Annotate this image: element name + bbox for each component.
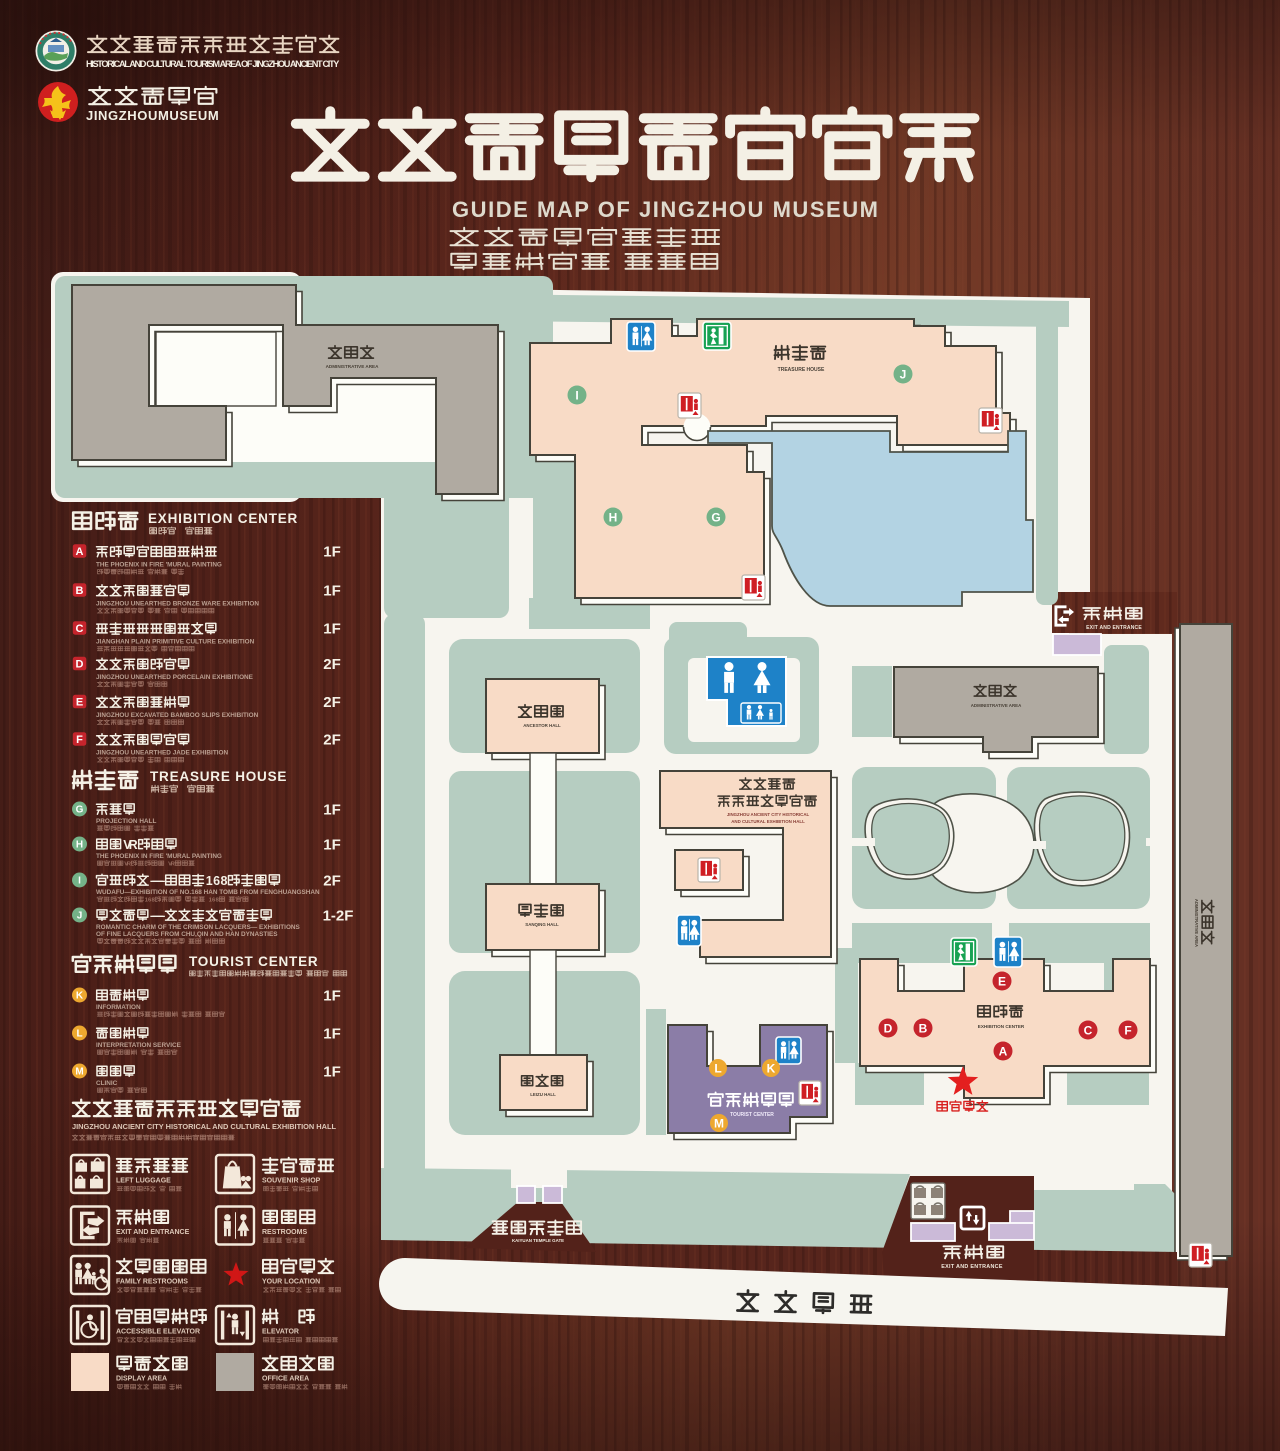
- svg-text:2F: 2F: [323, 694, 341, 711]
- svg-text:B: B: [919, 1021, 928, 1035]
- svg-text:I: I: [78, 876, 81, 887]
- svg-text:THE PHOENIX IN FIRE 'MURAL PAI: THE PHOENIX IN FIRE 'MURAL PAINTING: [96, 853, 222, 860]
- svg-text:1F: 1F: [323, 988, 341, 1005]
- svg-text:DISPLAY AREA: DISPLAY AREA: [116, 1376, 167, 1383]
- svg-text:H: H: [76, 840, 83, 851]
- svg-text:G: G: [76, 805, 84, 816]
- svg-text:AND CULTURAL EXHIBITION HALL: AND CULTURAL EXHIBITION HALL: [731, 819, 805, 824]
- svg-text:ELEVATOR: ELEVATOR: [262, 1329, 299, 1336]
- svg-text:1F: 1F: [323, 621, 341, 638]
- svg-text:TREASURE HOUSE: TREASURE HOUSE: [150, 769, 287, 784]
- svg-text:ADMINISTRATIVE AREA: ADMINISTRATIVE AREA: [326, 364, 380, 369]
- svg-text:1F: 1F: [323, 583, 341, 600]
- svg-text:TOURIST CENTER: TOURIST CENTER: [730, 1112, 774, 1118]
- svg-text:TREASURE HOUSE: TREASURE HOUSE: [778, 367, 825, 373]
- svg-text:J: J: [900, 367, 907, 381]
- svg-text:J: J: [77, 911, 83, 922]
- svg-text:ROMANTIC CHARM OF THE CRIMSON: ROMANTIC CHARM OF THE CRIMSON LACQUERS— …: [96, 924, 301, 931]
- svg-text:2F: 2F: [323, 732, 341, 749]
- svg-text:F: F: [1124, 1023, 1131, 1037]
- svg-text:B: B: [76, 585, 84, 597]
- svg-text:168: 168: [206, 874, 228, 888]
- svg-text:H: H: [609, 510, 618, 524]
- svg-text:THE PHOENIX IN FIRE 'MURAL PAI: THE PHOENIX IN FIRE 'MURAL PAINTING: [96, 562, 222, 569]
- svg-text:JINGZHOUMUSEUM: JINGZHOUMUSEUM: [86, 108, 219, 123]
- svg-text:ANCESTOR HALL: ANCESTOR HALL: [523, 723, 561, 728]
- svg-text:K: K: [76, 991, 84, 1002]
- svg-text:GUIDE MAP OF JINGZHOU MUSEUM: GUIDE MAP OF JINGZHOU MUSEUM: [452, 197, 878, 222]
- svg-text:M: M: [75, 1067, 83, 1078]
- svg-text:ADMINISTRATIVE AREA: ADMINISTRATIVE AREA: [1194, 899, 1199, 947]
- svg-text:L: L: [76, 1029, 82, 1040]
- svg-text:INTERPRETATION SERVICE: INTERPRETATION SERVICE: [96, 1042, 182, 1049]
- svg-text:YOUR LOCATION: YOUR LOCATION: [262, 1279, 320, 1286]
- svg-text:1F: 1F: [323, 1026, 341, 1043]
- svg-text:A: A: [999, 1044, 1008, 1058]
- svg-text:HISTORICAL AND CULTURAL TOURIS: HISTORICAL AND CULTURAL TOURISM AREA OF …: [86, 59, 339, 69]
- svg-text:LEFT LUGGAGE: LEFT LUGGAGE: [116, 1178, 171, 1185]
- svg-text:WUDAFU—EXHIBITION OF NO.168 HA: WUDAFU—EXHIBITION OF NO.168 HAN TOMB FRO…: [96, 889, 320, 896]
- svg-text:JIANGHAN PLAIN PRIMITIVE CULTU: JIANGHAN PLAIN PRIMITIVE CULTURE EXHIBIT…: [96, 639, 255, 646]
- svg-text:VR: VR: [124, 862, 132, 868]
- svg-text:L: L: [714, 1061, 721, 1075]
- svg-text:RESTROOMS: RESTROOMS: [262, 1229, 307, 1236]
- svg-text:JINGZHOU EXCAVATED BAMBOO SLIP: JINGZHOU EXCAVATED BAMBOO SLIPS EXHIBITI…: [96, 712, 259, 719]
- svg-text:2F: 2F: [323, 873, 341, 890]
- svg-text:168: 168: [145, 898, 156, 904]
- svg-text:1F: 1F: [323, 837, 341, 854]
- svg-text:ACCESSIBLE ELEVATOR: ACCESSIBLE ELEVATOR: [116, 1329, 200, 1336]
- svg-text:KAIYUAN TEMPLE GATE: KAIYUAN TEMPLE GATE: [512, 1238, 564, 1243]
- svg-text:SANQING HALL: SANQING HALL: [525, 922, 559, 927]
- svg-text:EXIT AND ENTRANCE: EXIT AND ENTRANCE: [941, 1264, 1003, 1270]
- svg-text:1F: 1F: [323, 1064, 341, 1081]
- svg-text:JINGZHOU UNEARTHED BRONZE WARE: JINGZHOU UNEARTHED BRONZE WARE EXHIBITIO…: [96, 601, 259, 608]
- svg-text:EXHIBITION CENTER: EXHIBITION CENTER: [978, 1024, 1025, 1029]
- svg-text:OF FINE LACQUERS FROM CHU,QIN: OF FINE LACQUERS FROM CHU,QIN AND HAN DY…: [96, 931, 278, 938]
- svg-text:EXIT AND ENTRANCE: EXIT AND ENTRANCE: [1086, 625, 1142, 631]
- svg-text:——: ——: [150, 874, 165, 888]
- svg-text:K: K: [767, 1061, 776, 1075]
- svg-text:E: E: [998, 974, 1006, 988]
- svg-text:D: D: [76, 659, 84, 671]
- svg-text:D: D: [884, 1021, 893, 1035]
- svg-text:TOURIST CENTER: TOURIST CENTER: [189, 954, 318, 969]
- svg-text:JINGZHOU ANCIENT CITY HISTORIC: JINGZHOU ANCIENT CITY HISTORICAL AND CUL…: [72, 1122, 336, 1131]
- svg-text:OFFICE AREA: OFFICE AREA: [262, 1376, 309, 1383]
- svg-text:1F: 1F: [323, 544, 341, 561]
- svg-text:VR: VR: [168, 862, 176, 868]
- svg-text:C: C: [76, 623, 84, 635]
- svg-text:M: M: [714, 1116, 724, 1130]
- svg-text:1F: 1F: [323, 802, 341, 819]
- svg-text:FAMILY RESTROOMS: FAMILY RESTROOMS: [116, 1279, 188, 1286]
- svg-text:A: A: [76, 546, 84, 558]
- svg-text:G: G: [711, 510, 720, 524]
- svg-text:168: 168: [209, 898, 220, 904]
- svg-text:INFORMATION: INFORMATION: [96, 1004, 141, 1011]
- svg-text:JINGZHOU UNEARTHED PORCELAIN E: JINGZHOU UNEARTHED PORCELAIN EXHIBITIONE: [96, 674, 254, 681]
- svg-text:LEIZU HALL: LEIZU HALL: [530, 1092, 556, 1097]
- svg-text:ADMINISTRATIVE AREA: ADMINISTRATIVE AREA: [971, 703, 1022, 708]
- svg-text:E: E: [76, 697, 83, 709]
- svg-text:CLINIC: CLINIC: [96, 1080, 118, 1087]
- svg-text:EXIT AND ENTRANCE: EXIT AND ENTRANCE: [116, 1229, 190, 1236]
- svg-text:SOUVENIR SHOP: SOUVENIR SHOP: [262, 1178, 321, 1185]
- svg-text:PROJECTION HALL: PROJECTION HALL: [96, 818, 156, 825]
- svg-text:1-2F: 1-2F: [323, 908, 354, 925]
- svg-text:VR: VR: [123, 838, 138, 852]
- svg-text:EXHIBITION CENTER: EXHIBITION CENTER: [148, 511, 298, 526]
- svg-text:2F: 2F: [323, 656, 341, 673]
- svg-text:JINGZHOU UNEARTHED JADE EXHIBI: JINGZHOU UNEARTHED JADE EXHIBITION: [96, 750, 228, 757]
- svg-text:F: F: [76, 734, 83, 746]
- svg-text:JINGZHOU ANCIENT CITY HISTORIC: JINGZHOU ANCIENT CITY HISTORICAL: [727, 812, 810, 817]
- svg-text:C: C: [1084, 1023, 1093, 1037]
- svg-text:——: ——: [150, 909, 165, 923]
- svg-text:I: I: [575, 388, 578, 402]
